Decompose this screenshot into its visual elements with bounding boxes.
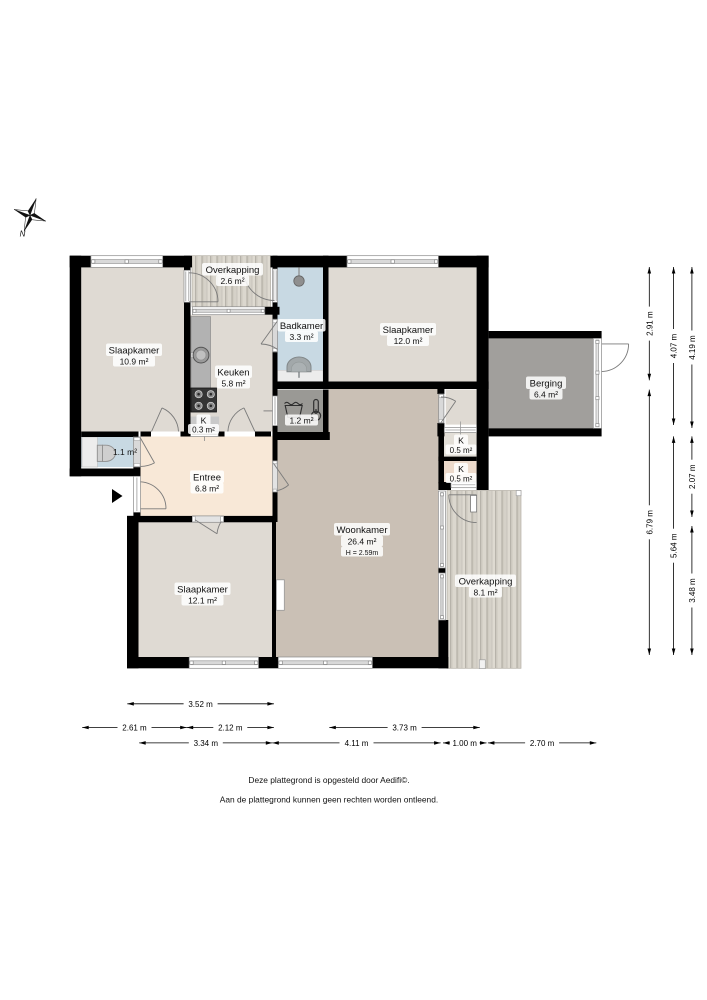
svg-text:Aan de plattegrond kunnen geen: Aan de plattegrond kunnen geen rechten w…	[220, 795, 438, 805]
svg-text:K: K	[458, 436, 464, 446]
svg-text:1.2 m²: 1.2 m²	[289, 416, 313, 426]
svg-text:Berging: Berging	[530, 379, 563, 390]
svg-text:4.07 m: 4.07 m	[670, 333, 679, 358]
svg-text:6.79 m: 6.79 m	[645, 510, 654, 535]
svg-text:K: K	[201, 416, 207, 426]
svg-text:1.00 m: 1.00 m	[452, 739, 477, 748]
svg-text:Entree: Entree	[193, 473, 221, 484]
svg-text:3.3 m²: 3.3 m²	[289, 332, 313, 342]
svg-text:8.1 m²: 8.1 m²	[473, 588, 497, 598]
svg-text:4.11 m: 4.11 m	[345, 739, 369, 748]
svg-text:1.1 m²: 1.1 m²	[113, 447, 137, 457]
svg-text:H = 2.59m: H = 2.59m	[346, 550, 379, 557]
svg-text:Woonkamer: Woonkamer	[336, 525, 387, 536]
svg-text:3.52 m: 3.52 m	[188, 700, 213, 709]
svg-text:2.6 m²: 2.6 m²	[220, 276, 244, 286]
svg-text:Deze plattegrond is opgesteld: Deze plattegrond is opgesteld door Aedif…	[248, 775, 409, 785]
svg-text:3.73 m: 3.73 m	[392, 724, 417, 733]
svg-text:2.07 m: 2.07 m	[688, 464, 697, 489]
svg-text:6.4 m²: 6.4 m²	[534, 390, 558, 400]
svg-text:Slaapkamer: Slaapkamer	[383, 325, 434, 336]
svg-text:2.91 m: 2.91 m	[645, 311, 654, 336]
svg-text:Badkamer: Badkamer	[280, 321, 323, 332]
svg-text:0.3 m²: 0.3 m²	[192, 426, 215, 435]
svg-text:Keuken: Keuken	[217, 368, 249, 379]
svg-text:Overkapping: Overkapping	[459, 577, 513, 588]
svg-text:N: N	[20, 230, 26, 239]
svg-text:2.61 m: 2.61 m	[122, 724, 147, 733]
svg-text:2.12 m: 2.12 m	[218, 724, 243, 733]
svg-text:12.1 m²: 12.1 m²	[188, 596, 217, 606]
svg-text:6.8 m²: 6.8 m²	[195, 484, 219, 494]
svg-text:2.70 m: 2.70 m	[530, 739, 555, 748]
svg-text:12.0 m²: 12.0 m²	[394, 336, 423, 346]
svg-text:Slaapkamer: Slaapkamer	[177, 585, 228, 596]
svg-text:0.5 m²: 0.5 m²	[450, 475, 473, 484]
svg-text:10.9 m²: 10.9 m²	[120, 357, 149, 367]
svg-text:Overkapping: Overkapping	[206, 265, 260, 276]
svg-text:3.34 m: 3.34 m	[194, 739, 219, 748]
svg-text:4.19 m: 4.19 m	[688, 335, 697, 360]
svg-text:3.48 m: 3.48 m	[688, 578, 697, 603]
svg-text:0.5 m²: 0.5 m²	[450, 446, 473, 455]
svg-text:K: K	[458, 464, 464, 474]
svg-text:Slaapkamer: Slaapkamer	[109, 346, 160, 357]
svg-text:5.8 m²: 5.8 m²	[221, 379, 245, 389]
svg-text:5.64 m: 5.64 m	[670, 533, 679, 558]
svg-text:26.4 m²: 26.4 m²	[348, 537, 377, 547]
